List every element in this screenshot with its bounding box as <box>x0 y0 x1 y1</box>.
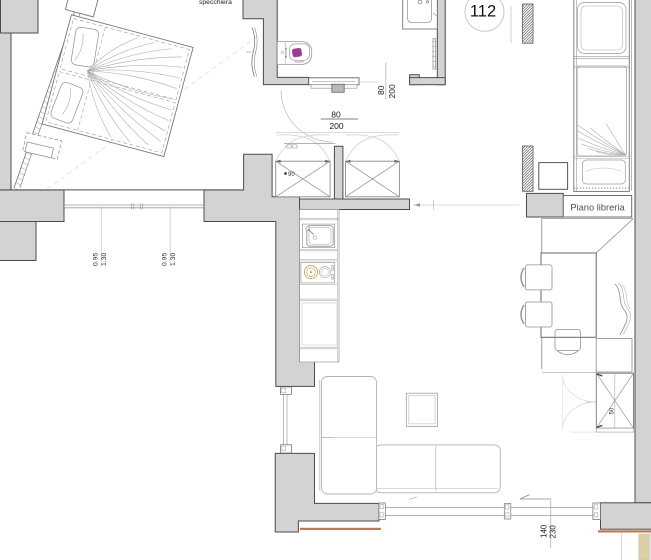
svg-text:230: 230 <box>549 525 558 539</box>
svg-text:140: 140 <box>540 524 549 538</box>
svg-text:80: 80 <box>376 85 386 95</box>
svg-text:0.95: 0.95 <box>161 253 168 266</box>
svg-text:specchiera: specchiera <box>199 0 232 6</box>
svg-text:1.30: 1.30 <box>170 253 177 266</box>
svg-text:200: 200 <box>329 121 343 131</box>
svg-text:1.30: 1.30 <box>101 253 108 266</box>
svg-text:Piano libreria: Piano libreria <box>570 203 625 213</box>
svg-text:200: 200 <box>387 84 397 98</box>
svg-text:80: 80 <box>331 110 341 120</box>
svg-text:112: 112 <box>470 2 496 20</box>
svg-text:50: 50 <box>610 407 616 414</box>
svg-text:90: 90 <box>288 172 295 178</box>
svg-text:0.95: 0.95 <box>93 253 100 266</box>
